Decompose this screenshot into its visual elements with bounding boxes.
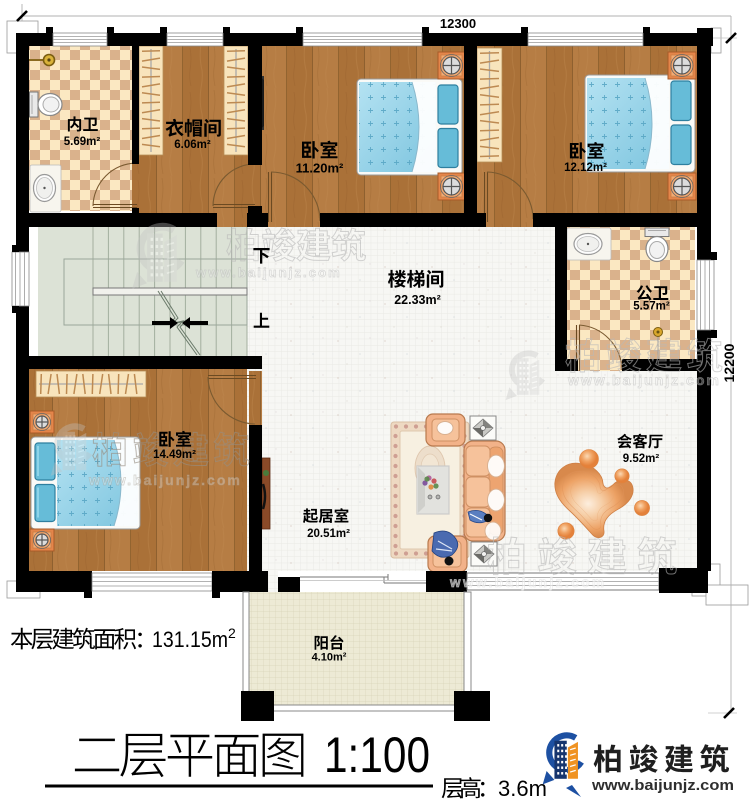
svg-text:5.57m²: 5.57m² <box>633 301 670 313</box>
svg-text:22.33m²: 22.33m² <box>394 293 441 307</box>
svg-text:www.baijunjz.com: www.baijunjz.com <box>88 472 242 488</box>
svg-text:2: 2 <box>228 625 236 641</box>
svg-text:www.baijunjz.com: www.baijunjz.com <box>449 575 607 590</box>
svg-text:9.52m²: 9.52m² <box>623 453 660 465</box>
svg-text:20.51m²: 20.51m² <box>307 528 350 540</box>
svg-text:5.69m²: 5.69m² <box>64 136 101 148</box>
svg-text:1:100: 1:100 <box>324 727 430 783</box>
svg-text:www.baijunjz.com: www.baijunjz.com <box>591 778 734 794</box>
svg-text:11.20m²: 11.20m² <box>296 161 344 176</box>
svg-text:3.6m: 3.6m <box>498 776 547 801</box>
svg-text:12.12m²: 12.12m² <box>564 162 607 174</box>
svg-text:www.baijunjz.com: www.baijunjz.com <box>567 372 721 388</box>
svg-text:12200: 12200 <box>721 343 737 382</box>
svg-text:4.10m²: 4.10m² <box>312 652 347 664</box>
svg-text:12300: 12300 <box>440 16 476 31</box>
svg-text:6.06m²: 6.06m² <box>174 139 211 151</box>
svg-text:131.15m: 131.15m <box>152 627 228 652</box>
svg-text:14.49m²: 14.49m² <box>153 449 196 461</box>
svg-text:www.baijunjz.com: www.baijunjz.com <box>195 265 342 280</box>
